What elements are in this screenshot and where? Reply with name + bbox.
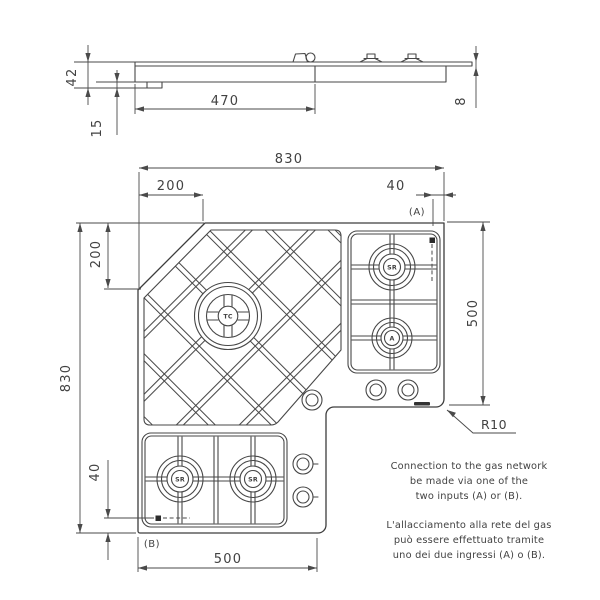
top-view: TC SR A: [59, 152, 516, 572]
side-view-body: [135, 62, 472, 88]
dim-830-left-label: 830: [59, 364, 74, 392]
dim-8: 8: [454, 46, 479, 108]
burner-sr-right: SR: [369, 244, 415, 290]
dim-200-top-label: 200: [157, 179, 185, 194]
side-view-knobs: [293, 53, 423, 62]
gas-input-a-marker: [430, 238, 436, 282]
burner-sr-right-label: SR: [387, 264, 397, 271]
side-view-top-plate: [135, 62, 472, 66]
dim-200-left: 200: [89, 223, 141, 289]
burner-sr-bottom-right-label: SR: [248, 476, 258, 483]
dim-15: 15: [90, 70, 135, 137]
control-knob-5: [293, 487, 318, 507]
dim-500-right: 500: [447, 222, 490, 405]
ignition-profile: [306, 53, 315, 62]
radius-callout: R10: [447, 410, 516, 433]
hob-technical-drawing: 42 15 470 8: [0, 0, 600, 600]
technical-drawing-page: 42 15 470 8: [0, 0, 600, 600]
note-it-line2: può essere effettuato tramite: [394, 534, 544, 546]
dim-500-right-label: 500: [466, 299, 481, 327]
dim-40-top-label: 40: [387, 179, 406, 194]
side-view-chassis: [135, 66, 446, 82]
dim-500-bottom-label: 500: [214, 552, 242, 567]
dim-40-top: 40: [387, 179, 456, 226]
burner-cap-profile-2: [360, 54, 382, 62]
burner-tc: TC: [195, 283, 262, 350]
note-it-line3: uno dei due ingressi (A) o (B).: [393, 550, 545, 561]
burner-cap-profile-1: [293, 54, 308, 63]
dim-200-top: 200: [139, 179, 203, 221]
radius-label: R10: [481, 417, 507, 432]
note-en-line2: be made via one of the: [410, 476, 528, 487]
dim-470-label: 470: [211, 94, 239, 109]
control-knob-1: [366, 380, 386, 400]
side-view: 42 15 470 8: [65, 45, 479, 137]
input-b-label: (B): [144, 539, 160, 550]
note-en-line1: Connection to the gas network: [391, 461, 548, 472]
control-knob-2: [398, 380, 418, 400]
side-view-gas-tab: [147, 82, 162, 88]
burner-cap-profile-3: [401, 54, 423, 62]
burner-sr-bottom-right: SR: [230, 456, 276, 502]
brand-logo: [414, 402, 430, 406]
bottom-pan-support: SR SR: [142, 433, 287, 527]
note-it-line1: L'allacciamento alla rete del gas: [386, 520, 551, 531]
dim-200-left-label: 200: [89, 240, 104, 268]
control-knobs: [293, 380, 418, 507]
right-pan-support: SR A: [348, 231, 440, 373]
dim-8-label: 8: [454, 96, 469, 105]
dim-15-label: 15: [90, 119, 105, 138]
burner-aux-label: A: [389, 335, 394, 342]
input-a-label: (A): [409, 207, 425, 218]
burner-sr-bottom-left: SR: [157, 456, 203, 502]
notes: Connection to the gas network be made vi…: [386, 461, 551, 561]
dim-42-label: 42: [65, 68, 80, 87]
dim-40-left-label: 40: [88, 463, 103, 482]
burner-aux: A: [372, 318, 412, 358]
corner-pan-support: TC: [144, 230, 341, 425]
control-knob-3: [302, 390, 322, 410]
control-knob-4: [293, 454, 318, 474]
note-en-line3: two inputs (A) or (B).: [416, 491, 523, 502]
burner-tc-label: TC: [223, 314, 232, 321]
dim-830-top-label: 830: [275, 152, 303, 167]
dim-500-bottom: 500: [138, 537, 317, 572]
gas-input-b-marker: [156, 516, 191, 522]
burner-sr-bottom-left-label: SR: [175, 476, 185, 483]
